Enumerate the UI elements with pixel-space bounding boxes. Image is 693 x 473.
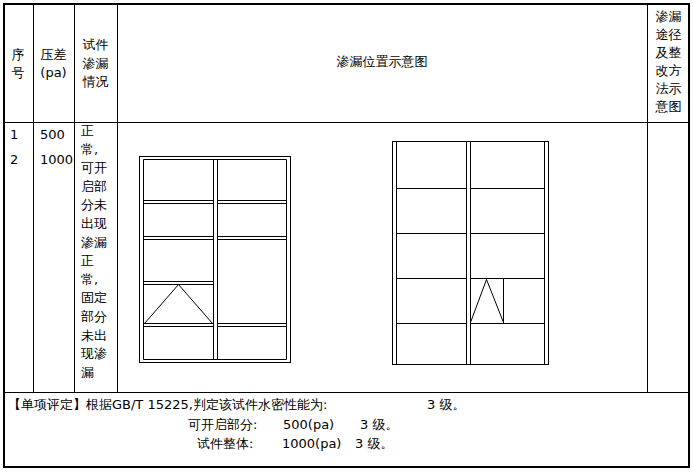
window-elevation-left [139,156,291,363]
cell-leakage-status: 正 常, 可开 启部 分未 出现 渗漏 正 常, 固定 部分 未出 现渗 漏 [74,122,117,382]
whole-specimen-grade: 3 级。 [355,436,393,452]
window-elevation-right [392,141,549,365]
test-report-page: 序 号 压差 (pa) 试件 渗漏 情况 渗漏位置示意图 渗漏 途径 及整 改方… [0,0,693,473]
whole-specimen-label: 试件整体: [197,436,253,452]
header-leakage-position-diagram: 渗漏位置示意图 [117,54,647,70]
openable-part-grade: 3 级。 [360,417,398,433]
cell-serial-numbers: 1 2 [3,122,33,172]
overall-grade: 3 级。 [427,397,465,413]
evaluation-label: 【单项评定】 [8,397,86,413]
row-bottom-line [5,392,688,393]
header-leakage-status: 试件 渗漏 情况 [74,36,117,92]
openable-part-label: 可开启部分: [188,417,257,433]
evaluation-basis-text: 根据GB/T 15225,判定该试件水密性能为: [86,397,327,413]
header-pressure: 压差 (pa) [33,46,74,82]
evaluation-line-whole: 试件整体: 1000(pa) 3 级。 [0,436,693,473]
header-serial-number: 序 号 [3,46,33,82]
openable-part-pressure: 500(pa) [283,417,334,433]
header-leakage-path-method: 渗漏 途径 及整 改方 法示 意图 [647,8,690,116]
cell-pressure-values: 500 1000 [33,122,74,172]
whole-specimen-pressure: 1000(pa) [282,436,341,452]
